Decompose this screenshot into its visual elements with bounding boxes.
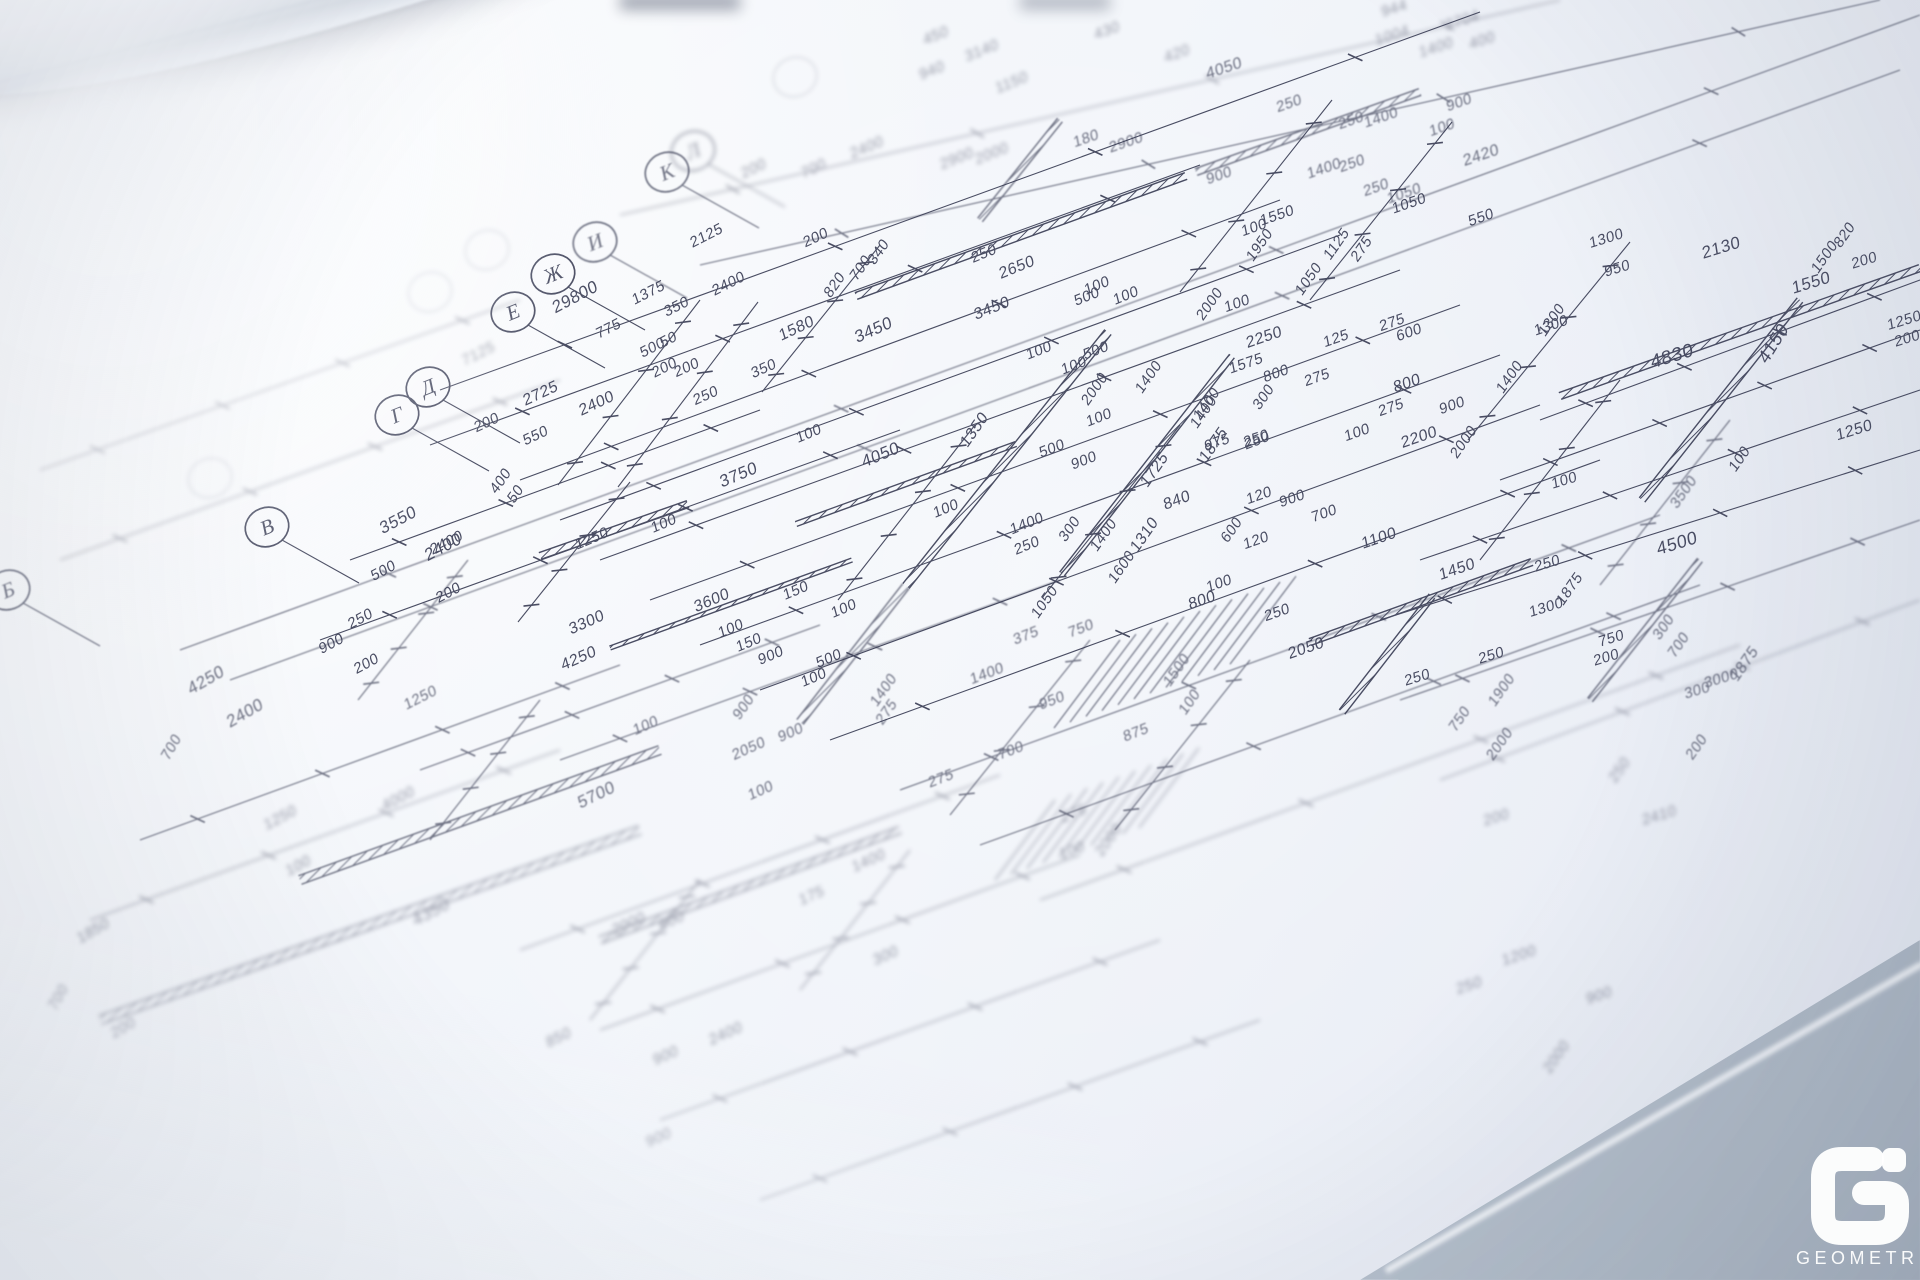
dim-label: 900 [1278, 486, 1306, 511]
dim-tick [881, 534, 897, 536]
dim-tick [1051, 576, 1067, 578]
wall-edge [982, 122, 1062, 222]
dim-label: 2050 [730, 733, 767, 764]
dim-label: 2000 [1078, 369, 1111, 410]
dim-label: 1300 [1588, 225, 1624, 252]
dim-tick [455, 317, 469, 324]
dim-tick [1524, 492, 1540, 494]
dim-label: 1400 [1008, 509, 1045, 539]
dim-tick [1479, 415, 1495, 417]
dim-label: 4250 [559, 642, 598, 675]
axis-bubble-circle [460, 224, 515, 276]
dim-label: 200 [801, 224, 830, 252]
dim-label: 875 [1122, 720, 1151, 746]
dim-tick [523, 604, 539, 606]
dim-label: 4000 [380, 782, 417, 815]
axis-bubble [768, 51, 823, 103]
wall-hatch [1310, 562, 1532, 642]
dim-tick [1157, 766, 1173, 768]
wall-edge [101, 834, 641, 1024]
dim-label: 430 [1093, 18, 1121, 44]
dim-label: 800 [1392, 370, 1422, 397]
dim-tick [675, 321, 691, 323]
dim-label: 1900 [1485, 670, 1518, 711]
dim-label: 2000 [1540, 1037, 1573, 1078]
dim-label: 3750 [718, 458, 760, 492]
dim-tick [970, 129, 984, 138]
dim-label: 300 [1250, 380, 1278, 413]
axis-bubble-label: Е [502, 298, 524, 325]
dim-label: 200 [352, 650, 381, 678]
dim-label: 500 [369, 557, 398, 585]
dim-tick [1848, 467, 1862, 474]
dim-tick [447, 576, 463, 578]
dim-tick [1489, 537, 1505, 539]
dim-tick [1065, 660, 1081, 662]
dim-label: 700 [799, 155, 828, 183]
dim-tick [697, 371, 713, 373]
dim-tick [1142, 160, 1156, 169]
dim-label: 700 [1310, 501, 1338, 526]
dim-label: 1400 [1132, 357, 1165, 398]
dim-label: 900 [1585, 983, 1613, 1008]
blueprint-photo: Л712512504000100435018507002002000275100… [0, 0, 1920, 1280]
dim-line [1440, 600, 1920, 780]
axis-bubble-label: Ж [539, 259, 567, 289]
dim-label: 100 [1343, 420, 1371, 445]
dim-label: 900 [651, 1042, 680, 1069]
dim-tick [391, 647, 407, 649]
dim-label: 2125 [688, 220, 725, 252]
dim-tick [1228, 220, 1244, 222]
dim-label: 200 [1683, 730, 1711, 763]
dim-label: 1500 [1160, 650, 1193, 691]
dim-label: 2400 [224, 694, 266, 732]
dim-label: 600 [657, 907, 686, 934]
dim-label: 1050 [1028, 582, 1061, 623]
dim-label: 3550 [377, 501, 419, 538]
dim-label: 1400 [1306, 154, 1343, 182]
dim-label: 2410 [1641, 802, 1677, 829]
dim-tick [1608, 564, 1624, 566]
axis-leader-line [528, 325, 605, 368]
dim-tick [627, 464, 643, 466]
dim-tick [1266, 172, 1282, 174]
watermark: GEOMETRIA [1796, 1146, 1920, 1269]
dim-label: 275 [1377, 395, 1405, 420]
dim-label: 3450 [972, 292, 1011, 324]
dim-tick [833, 937, 849, 939]
dim-label: 1300 [1528, 594, 1564, 621]
dim-label: 300 [871, 942, 900, 969]
dim-label: 250 [1455, 973, 1483, 998]
dim-tick [490, 752, 506, 754]
dim-label: 2050 [1287, 633, 1326, 663]
dim-label: 820 [821, 268, 849, 301]
dim-label: 2000 [973, 139, 1010, 169]
dim-label: 775 [594, 315, 623, 343]
dim-label: 840 [1162, 486, 1192, 514]
dim-label: 950 [1038, 688, 1067, 714]
dim-label: 100 [1058, 838, 1087, 864]
dim-label: 1400 [1493, 357, 1526, 398]
dim-line [558, 300, 700, 485]
axis-bubble-label: Д [415, 373, 440, 402]
dim-line [600, 855, 1080, 1030]
dim-line [1500, 330, 1920, 480]
dim-label: 2200 [1400, 422, 1439, 452]
dim-label: 700 [45, 980, 72, 1013]
wall-edge [978, 118, 1058, 218]
dim-label: 300 [1056, 512, 1084, 545]
dim-label: 7125 [460, 338, 497, 370]
dim-label: 900 [1070, 448, 1099, 474]
dim-label: 2130 [1701, 232, 1742, 262]
wall-edge [298, 746, 658, 876]
dim-tick [1850, 538, 1864, 545]
dim-tick [959, 793, 975, 795]
dim-tick [1706, 439, 1722, 441]
dim-line [700, 355, 1500, 645]
dim-label: 180 [1072, 126, 1100, 151]
geometria-logo-icon [1808, 1146, 1912, 1246]
dim-label: 1600 [1105, 547, 1138, 588]
dim-tick [603, 416, 619, 418]
dim-tick [1319, 278, 1335, 280]
dim-label: 2650 [997, 251, 1036, 283]
wall-hatch [300, 750, 660, 880]
dim-label: 400 [1468, 28, 1496, 53]
watermark-brand-text: GEOMETRIA [1796, 1248, 1920, 1269]
dim-tick [551, 569, 567, 571]
dim-label: 275 [927, 766, 956, 792]
axis-bubble [460, 224, 515, 276]
dim-label: 2704 [1444, 7, 1481, 35]
dim-label: 2420 [1462, 140, 1501, 170]
dim-label: 2000 [610, 908, 647, 939]
dim-label: 250 [1533, 551, 1561, 576]
dim-tick [1603, 492, 1617, 499]
dim-tick [595, 1002, 611, 1004]
dim-label: 550 [1467, 205, 1495, 230]
axis-bubble-label: Л [681, 137, 706, 166]
dim-label: 1125 [1321, 224, 1353, 264]
dim-label: 750 [1446, 702, 1474, 735]
dim-label: 250 [970, 240, 999, 267]
dim-label: 1875 [1727, 642, 1762, 685]
dim-label: 250 [691, 382, 720, 409]
dim-label: 500 [1038, 436, 1067, 462]
dim-tick [215, 402, 229, 409]
dim-tick [860, 902, 876, 904]
dim-line [1115, 660, 1250, 830]
dim-line [1480, 380, 1620, 560]
axis-bubble: В [240, 501, 359, 583]
dim-tick [733, 323, 749, 325]
axis-bubble-label: К [655, 158, 679, 186]
dim-tick [623, 967, 639, 969]
axis-bubble-label: Б [0, 577, 18, 604]
dim-label: 900 [1445, 90, 1473, 115]
dim-label: 200 [672, 354, 701, 381]
dim-line [430, 700, 540, 840]
dim-line [350, 410, 760, 560]
dim-label: 1150 [994, 68, 1030, 97]
dim-label: 200 [1850, 248, 1878, 273]
dim-label: 944 [1380, 0, 1408, 21]
dim-label: 275 [1348, 232, 1376, 265]
dim-label: 125 [1322, 326, 1350, 351]
dim-tick [846, 578, 862, 580]
dim-tick [363, 682, 379, 684]
dim-label: 2400 [577, 387, 616, 420]
wall-hatch [1590, 560, 1700, 700]
dim-label: 2000 [1483, 724, 1516, 765]
dim-label: 850 [544, 1024, 573, 1052]
dim-label: 250 [1242, 426, 1270, 451]
axis-bubble-label: В [257, 513, 278, 540]
dim-label: 100 [1223, 291, 1251, 316]
wall-hatch [1196, 92, 1420, 172]
dim-label: 1250 [402, 682, 439, 714]
dim-tick [1543, 459, 1557, 466]
dim-label: 250 [1477, 643, 1505, 668]
dim-tick [1640, 523, 1656, 525]
dim-label: 100 [746, 777, 775, 804]
dim-label: 900 [1438, 393, 1466, 418]
dim-label: 1004 [1374, 22, 1411, 50]
dim-label: 420 [1163, 41, 1191, 67]
dim-tick [1578, 552, 1592, 559]
dim-label: 600 [1218, 513, 1246, 546]
dim-label: 700 [997, 738, 1026, 764]
dim-label: 940 [918, 57, 947, 84]
dim-tick [662, 417, 678, 419]
dim-tick [1455, 675, 1469, 682]
dim-tick [1862, 345, 1876, 352]
dim-tick [1713, 509, 1727, 516]
dim-label: 1310 [1127, 513, 1162, 556]
dim-label: 1400 [969, 659, 1006, 688]
dim-label: 100 [1025, 338, 1054, 364]
dim-line [1310, 122, 1452, 300]
dim-tick [726, 185, 740, 194]
dim-line [950, 640, 1090, 815]
dim-label: 2400 [710, 268, 747, 300]
dim-label: 200 [739, 155, 768, 183]
dim-tick [463, 787, 479, 789]
dim-label: 1450 [1438, 554, 1477, 584]
floor-plan-drawing: Л712512504000100435018507002002000275100… [0, 0, 1920, 1280]
wall-edge [601, 833, 901, 943]
dim-label: 550 [521, 422, 550, 450]
wall-edge [1309, 559, 1531, 639]
dim-tick [90, 446, 104, 453]
dim-label: 1400 [1418, 34, 1455, 62]
dim-tick [335, 359, 349, 366]
dim-line [140, 665, 620, 840]
dim-label: 1400 [1087, 515, 1120, 556]
dim-line [700, 0, 1880, 265]
dim-label: 450 [922, 22, 951, 49]
dim-tick [889, 866, 905, 868]
dim-label: 950 [1603, 256, 1631, 281]
wall-hatch [856, 176, 1186, 296]
dim-label: 1250 [573, 523, 610, 553]
axis-leader-line [282, 540, 359, 583]
dim-label: 250 [1606, 753, 1634, 786]
dim-label: 250 [1263, 600, 1291, 625]
stair-tread [1123, 754, 1183, 834]
top-edge-shadow [1020, 0, 1110, 10]
axis-bubble: Б [0, 564, 100, 646]
dim-label: 1550 [1791, 267, 1832, 297]
dim-label: 100 [829, 595, 858, 622]
dim-label: 2250 [1245, 322, 1284, 352]
dim-label: 100 [1726, 442, 1754, 475]
dim-label: 250 [1338, 151, 1366, 176]
dim-label: 3140 [963, 36, 1000, 66]
dim-line [618, 302, 758, 487]
axis-bubble-circle [403, 266, 458, 318]
dim-label: 3300 [567, 606, 606, 639]
dim-label: 100 [1550, 468, 1578, 493]
axis-bubble [183, 452, 238, 504]
dim-label: 1250 [262, 801, 299, 834]
dim-tick [1226, 679, 1242, 681]
dim-label: 350 [749, 355, 778, 382]
dim-tick [1720, 583, 1734, 590]
axis-bubble-circle [768, 51, 823, 103]
dim-line [760, 1020, 1260, 1200]
plan-layer-blurred: Л712512504000100435018507002002000275100… [40, 0, 1920, 1200]
wall-edge [857, 179, 1187, 299]
wall-edge [1195, 89, 1419, 169]
dim-tick [1191, 724, 1207, 726]
dim-label: 200 [472, 409, 501, 437]
dim-label: 4250 [185, 661, 227, 699]
dim-label: 500 [1073, 283, 1102, 310]
dim-line [518, 482, 630, 622]
dim-label: 1350 [957, 408, 992, 451]
dim-label: 100 [1428, 115, 1456, 140]
dim-tick [1853, 407, 1867, 414]
dim-label: 250 [1337, 108, 1365, 133]
dim-label: 120 [1242, 528, 1270, 553]
dim-tick [1559, 447, 1575, 449]
dim-label: 2000 [1092, 820, 1125, 861]
dim-label: 900 [317, 630, 346, 658]
dim-label: 250 [1275, 91, 1303, 116]
dim-tick [1732, 28, 1746, 37]
wall-hatch [980, 120, 1060, 220]
top-edge-shadow [620, 0, 740, 10]
dim-tick [1595, 401, 1611, 403]
dim-label: 200 [1482, 805, 1510, 830]
dim-label: 3500 [1667, 472, 1700, 513]
dim-label: 250 [1403, 665, 1431, 690]
dim-label: 100 [631, 712, 660, 739]
axis-bubble: Л [666, 125, 785, 207]
dim-label: 2000 [1447, 422, 1480, 463]
dim-tick [418, 612, 434, 614]
dim-tick [805, 972, 821, 974]
dim-tick [1757, 382, 1771, 389]
dim-label: 175 [797, 882, 826, 909]
dim-label: 1250 [1835, 416, 1874, 445]
dim-line [40, 300, 520, 470]
dim-label: 4050 [1205, 53, 1244, 83]
dim-tick [1652, 420, 1666, 427]
dim-line [60, 380, 560, 560]
dim-label: 200 [434, 579, 463, 607]
dim-tick [519, 716, 535, 718]
dim-line [1600, 420, 1730, 585]
dim-label: 100 [1176, 685, 1204, 718]
dim-label: 275 [1303, 365, 1331, 390]
dim-label: 2400 [707, 1018, 744, 1049]
dim-label: 975 [1203, 430, 1231, 455]
dim-label: 900 [776, 719, 805, 746]
dim-label: 375 [1012, 623, 1041, 649]
dim-tick [915, 491, 931, 493]
dim-label: 3450 [853, 312, 895, 347]
dim-tick [835, 229, 849, 238]
stair-tread [995, 800, 1055, 880]
axis-bubble-label: Г [386, 401, 408, 428]
dim-label: 900 [730, 690, 758, 723]
dim-line [1380, 450, 1920, 620]
dim-tick [798, 337, 814, 339]
dim-tick [1427, 142, 1443, 144]
axis-bubble-circle [183, 452, 238, 504]
dim-label: 900 [644, 1124, 673, 1151]
dim-label: 2900 [938, 144, 975, 174]
dim-label: 1575 [1228, 349, 1265, 377]
dim-label: 750 [1067, 616, 1096, 642]
dim-tick [1473, 536, 1487, 543]
axis-bubble [403, 266, 458, 318]
dim-tick [1190, 268, 1206, 270]
dim-label: 2900 [1108, 128, 1145, 156]
dim-tick [1123, 809, 1139, 811]
dim-label: 700 [158, 730, 185, 763]
dim-label: 1200 [1501, 942, 1538, 970]
dim-tick [609, 498, 625, 500]
dim-tick [679, 896, 695, 898]
axis-leader-line [23, 603, 100, 646]
dim-label: 1100 [1360, 523, 1398, 553]
axis-bubble-label: И [583, 227, 609, 256]
